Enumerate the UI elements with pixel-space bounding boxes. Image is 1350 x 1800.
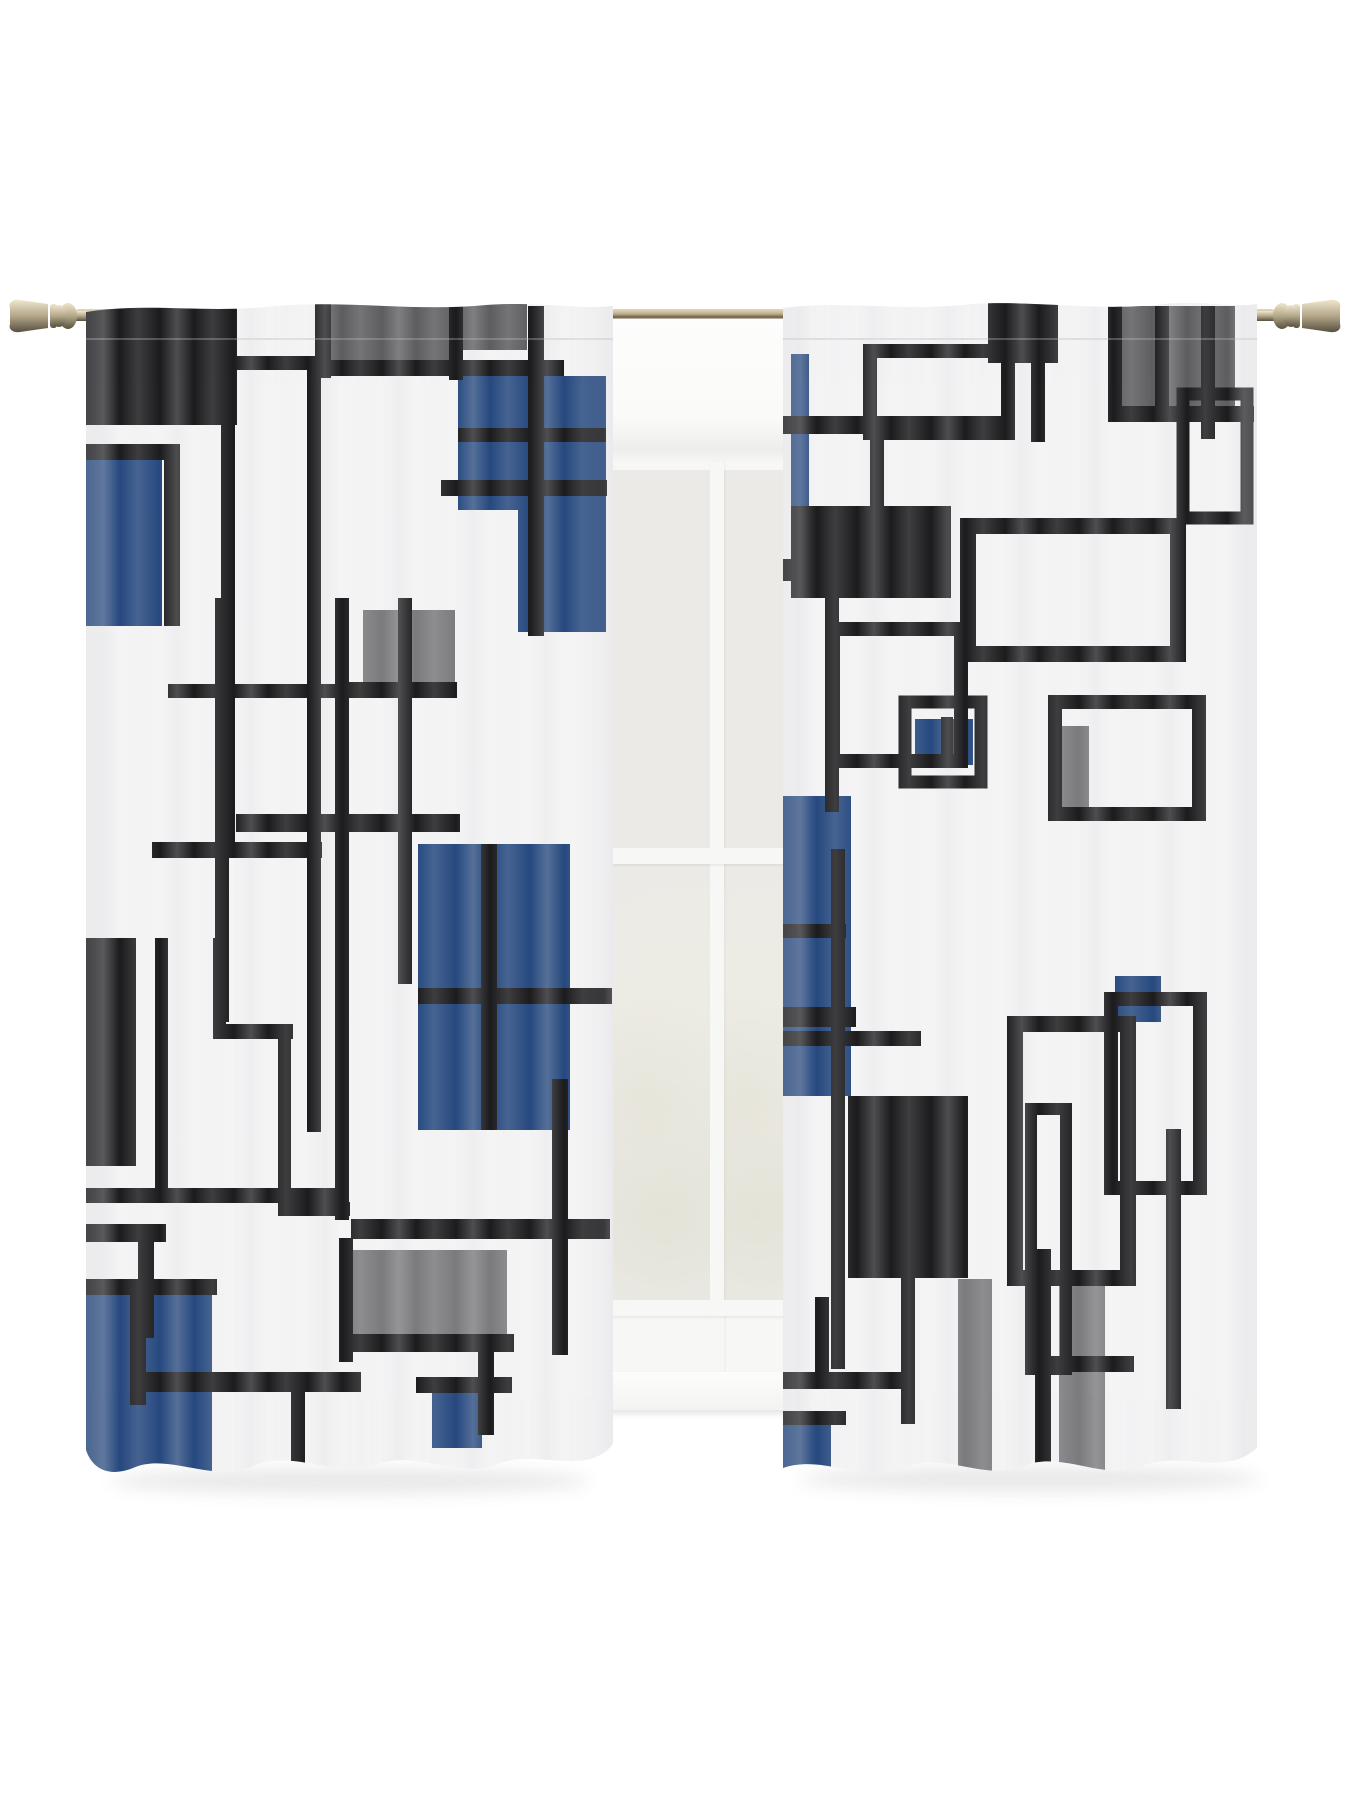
window-head-casing xyxy=(592,316,798,462)
curtain-panel-right xyxy=(783,298,1257,1490)
window xyxy=(592,316,798,1426)
rod-finial-left xyxy=(6,294,98,338)
window-pane-upper-right xyxy=(724,470,784,848)
left-hem-shadow xyxy=(110,1468,590,1494)
rod-pocket-stitch-left xyxy=(86,338,613,340)
product-photo-stage xyxy=(0,0,1350,1800)
window-mullion xyxy=(710,462,724,1372)
window-pane-upper-left xyxy=(612,470,710,848)
window-rail-lower xyxy=(592,1300,798,1316)
rod-finial-right xyxy=(1252,294,1344,338)
window-pane-lower-left xyxy=(612,864,710,1300)
window-rail-upper xyxy=(592,848,798,864)
window-sash xyxy=(592,462,798,1372)
rod-pocket-stitch-right xyxy=(783,338,1257,340)
window-pane-lower-right xyxy=(724,864,784,1300)
window-sill xyxy=(584,1372,806,1410)
curtain-panel-left xyxy=(86,298,613,1490)
